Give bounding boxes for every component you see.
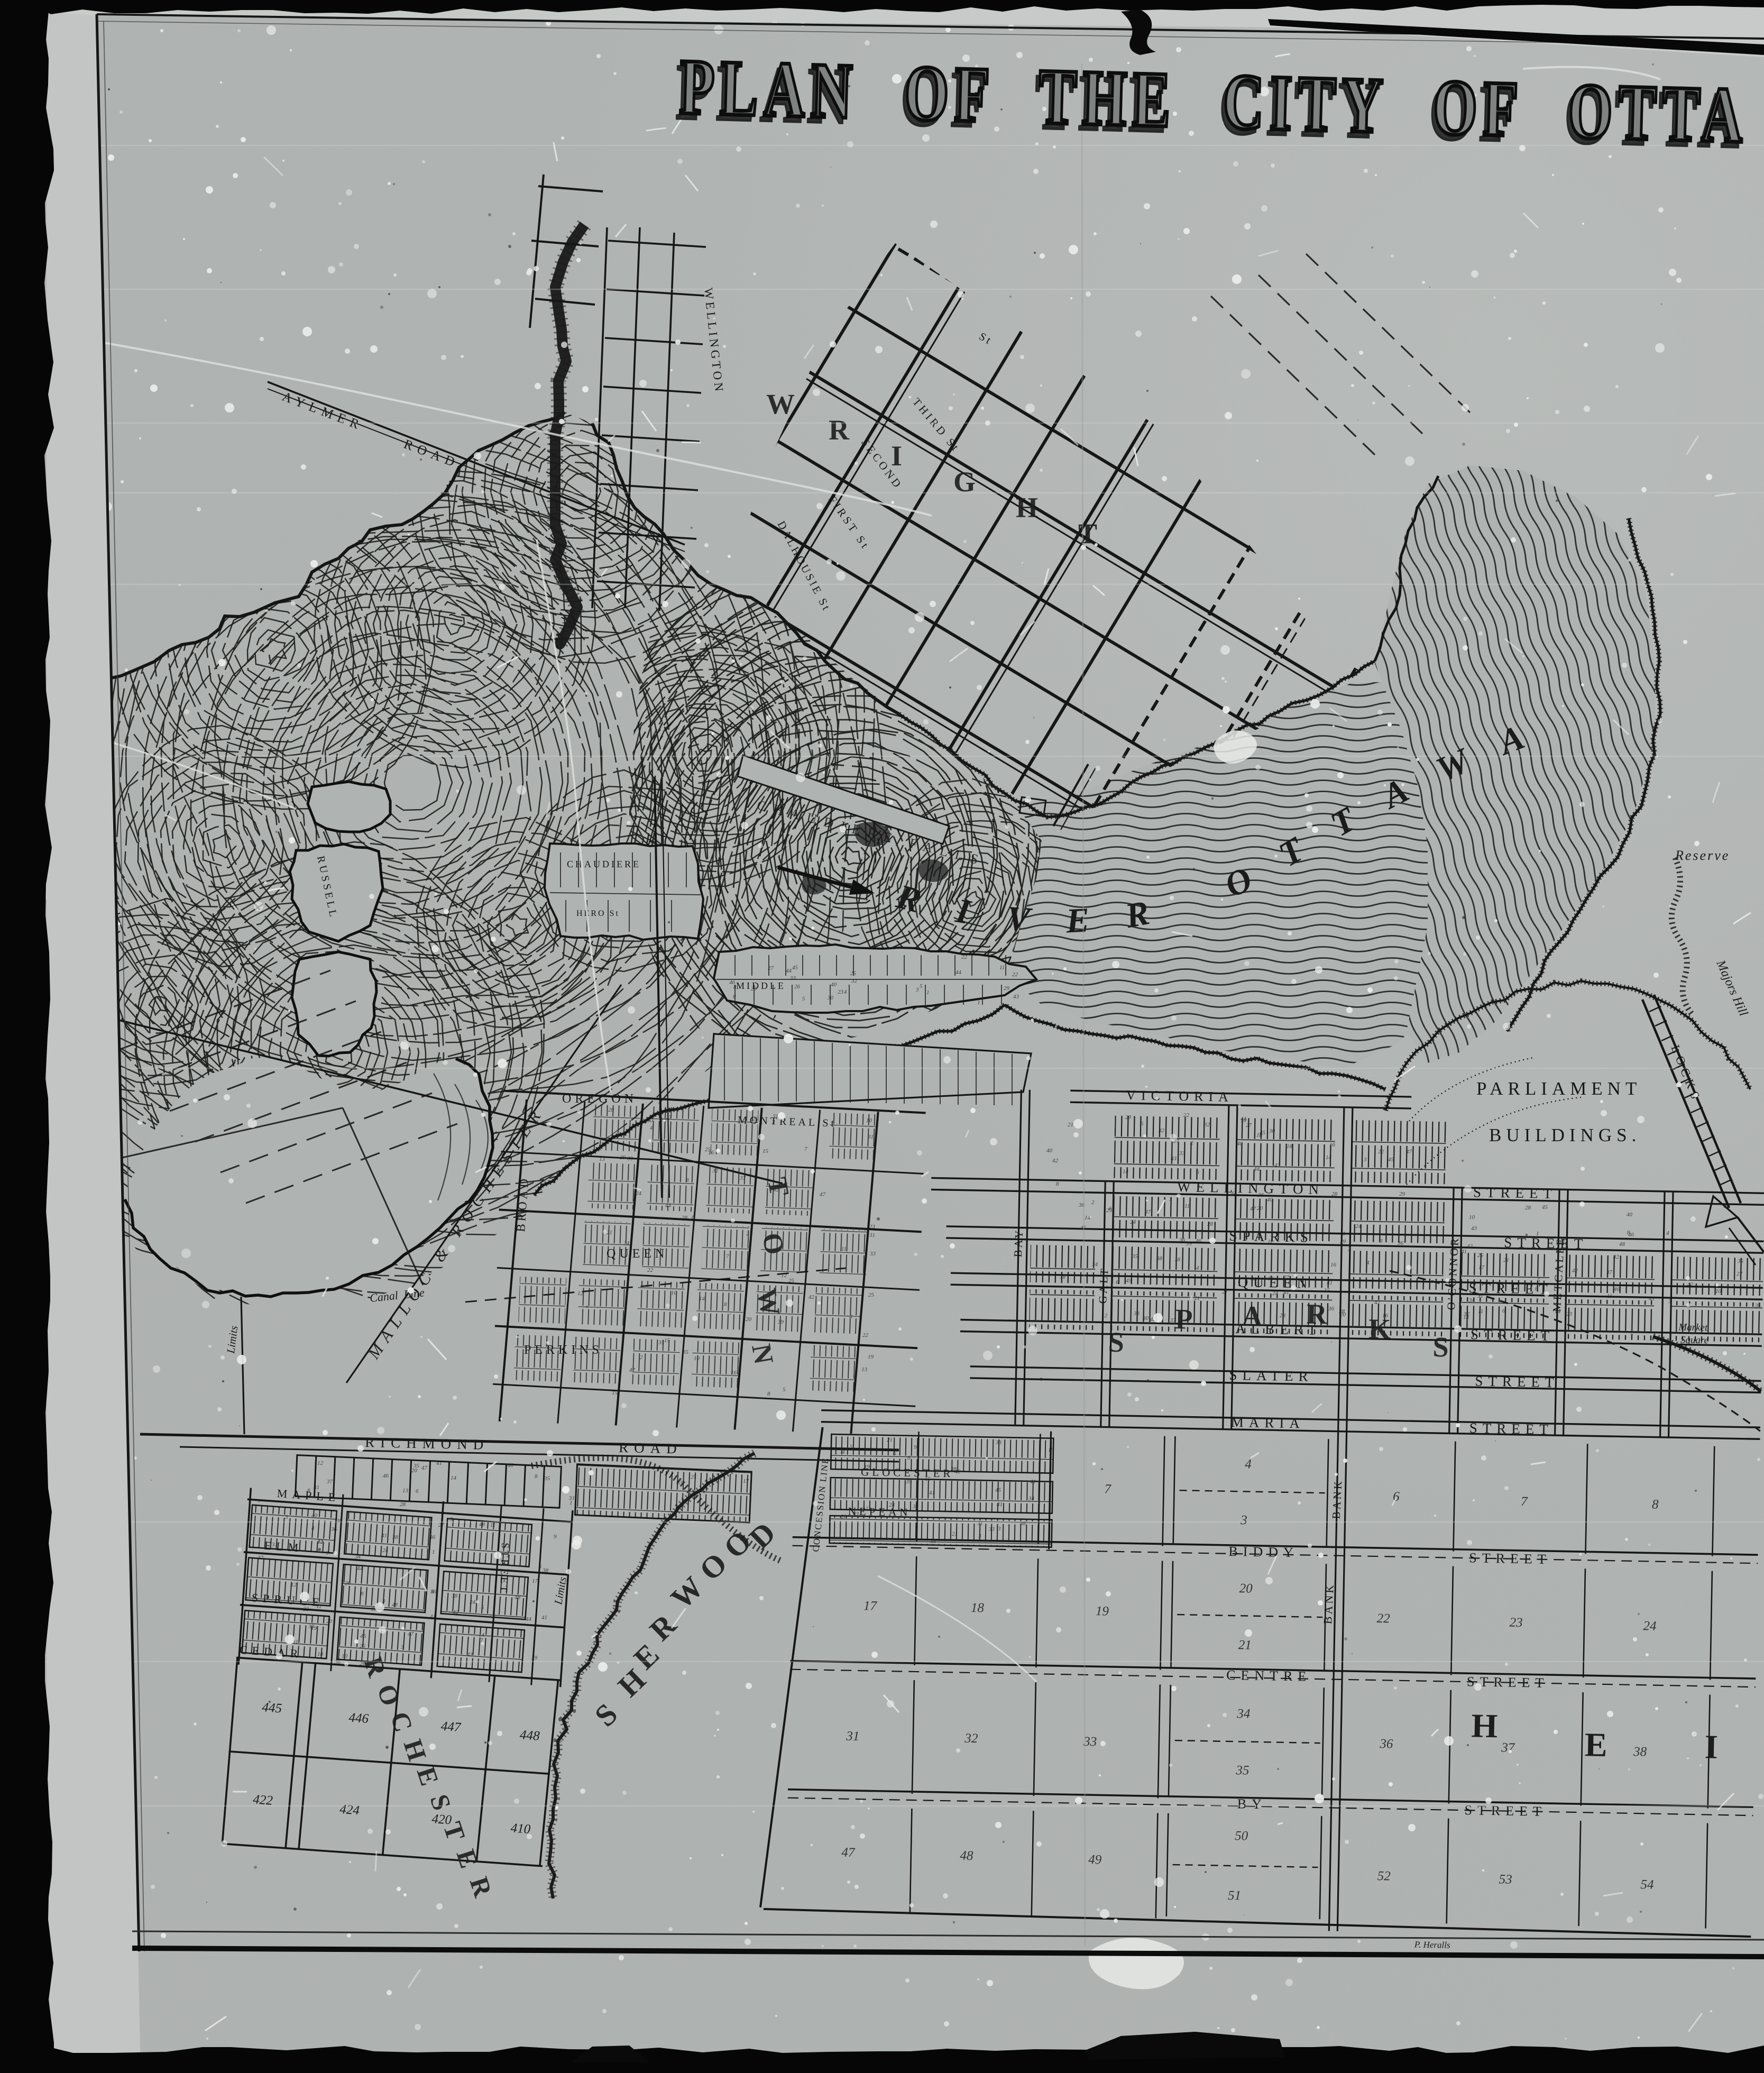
svg-text:15: 15 bbox=[1048, 1447, 1054, 1453]
svg-text:48: 48 bbox=[960, 1849, 973, 1863]
svg-text:8: 8 bbox=[1652, 1498, 1659, 1512]
svg-text:22: 22 bbox=[862, 1332, 869, 1338]
svg-text:22: 22 bbox=[961, 954, 968, 960]
svg-text:4: 4 bbox=[1666, 1230, 1669, 1236]
svg-text:RICHMOND: RICHMOND bbox=[365, 1434, 490, 1453]
svg-text:17: 17 bbox=[743, 1478, 749, 1484]
svg-text:I: I bbox=[1704, 1728, 1718, 1765]
svg-text:448: 448 bbox=[519, 1728, 540, 1744]
svg-text:36: 36 bbox=[1257, 1192, 1264, 1198]
svg-text:38: 38 bbox=[542, 1567, 549, 1574]
svg-text:45: 45 bbox=[792, 965, 798, 971]
svg-text:4: 4 bbox=[650, 1125, 653, 1131]
svg-text:22: 22 bbox=[1012, 971, 1018, 978]
svg-text:34: 34 bbox=[354, 1554, 361, 1560]
svg-text:46: 46 bbox=[1196, 1238, 1202, 1244]
svg-text:ROAD: ROAD bbox=[619, 1439, 683, 1457]
svg-text:31: 31 bbox=[867, 1134, 874, 1140]
svg-text:23: 23 bbox=[1509, 1616, 1522, 1630]
svg-text:3: 3 bbox=[1363, 1157, 1367, 1163]
svg-text:48: 48 bbox=[392, 1602, 398, 1608]
svg-text:6: 6 bbox=[1502, 1308, 1505, 1314]
svg-text:4: 4 bbox=[1366, 1260, 1370, 1266]
svg-text:43: 43 bbox=[467, 1652, 473, 1658]
svg-text:40: 40 bbox=[831, 982, 837, 988]
svg-text:23: 23 bbox=[838, 989, 844, 995]
svg-text:31: 31 bbox=[846, 1729, 859, 1744]
svg-text:6: 6 bbox=[692, 1214, 695, 1221]
svg-text:27: 27 bbox=[438, 1522, 445, 1528]
svg-text:18: 18 bbox=[1174, 1256, 1181, 1263]
svg-text:6: 6 bbox=[416, 1488, 419, 1494]
svg-text:445: 445 bbox=[262, 1700, 282, 1716]
svg-text:BY: BY bbox=[1237, 1796, 1267, 1812]
svg-text:8: 8 bbox=[1535, 1286, 1538, 1292]
svg-text:35: 35 bbox=[1132, 1253, 1138, 1260]
svg-text:43: 43 bbox=[1013, 994, 1019, 1000]
svg-text:35: 35 bbox=[658, 1340, 665, 1346]
svg-text:40: 40 bbox=[1267, 1197, 1273, 1203]
svg-text:5: 5 bbox=[1141, 1121, 1144, 1127]
svg-text:S: S bbox=[1108, 1326, 1124, 1359]
svg-text:48: 48 bbox=[514, 1594, 521, 1601]
svg-text:16: 16 bbox=[1382, 1313, 1389, 1319]
svg-text:Market: Market bbox=[1678, 1322, 1708, 1333]
svg-text:11: 11 bbox=[490, 1522, 495, 1528]
svg-text:OREGON: OREGON bbox=[562, 1092, 637, 1106]
svg-text:VICTORIA: VICTORIA bbox=[1126, 1087, 1234, 1105]
svg-text:40: 40 bbox=[1046, 1148, 1053, 1154]
svg-text:5: 5 bbox=[539, 1563, 542, 1570]
svg-text:23: 23 bbox=[666, 1114, 672, 1121]
svg-text:47: 47 bbox=[1250, 1206, 1256, 1212]
svg-text:12: 12 bbox=[705, 1478, 711, 1484]
svg-text:38: 38 bbox=[1633, 1745, 1647, 1759]
svg-text:14: 14 bbox=[1085, 1215, 1091, 1221]
svg-text:23: 23 bbox=[869, 1224, 876, 1230]
svg-text:10: 10 bbox=[1715, 1288, 1722, 1295]
svg-text:42: 42 bbox=[773, 1187, 779, 1193]
svg-text:7: 7 bbox=[1521, 1494, 1528, 1509]
svg-text:38: 38 bbox=[1156, 1255, 1163, 1262]
svg-text:44: 44 bbox=[1254, 1166, 1260, 1172]
svg-text:R: R bbox=[1306, 1298, 1328, 1330]
svg-text:4: 4 bbox=[311, 1525, 315, 1531]
svg-text:41: 41 bbox=[436, 1460, 442, 1466]
svg-text:47: 47 bbox=[629, 1367, 636, 1373]
svg-text:38: 38 bbox=[392, 1534, 399, 1540]
svg-text:20: 20 bbox=[1340, 1311, 1346, 1318]
svg-text:24: 24 bbox=[1643, 1619, 1656, 1633]
svg-text:447: 447 bbox=[440, 1719, 462, 1735]
svg-text:28: 28 bbox=[400, 1501, 406, 1508]
svg-text:40: 40 bbox=[1237, 1141, 1243, 1147]
svg-text:20: 20 bbox=[1257, 1205, 1263, 1212]
svg-text:41: 41 bbox=[314, 1484, 319, 1491]
svg-text:41: 41 bbox=[1030, 1479, 1036, 1485]
svg-text:25: 25 bbox=[868, 1292, 875, 1298]
svg-text:52: 52 bbox=[1377, 1869, 1391, 1883]
svg-text:33: 33 bbox=[1133, 1310, 1140, 1317]
svg-text:26: 26 bbox=[345, 1580, 351, 1586]
svg-text:STREET: STREET bbox=[1475, 1373, 1559, 1390]
svg-text:23: 23 bbox=[1566, 1311, 1573, 1317]
svg-text:43: 43 bbox=[1471, 1225, 1477, 1232]
svg-text:17: 17 bbox=[1478, 1264, 1485, 1271]
svg-text:37: 37 bbox=[1144, 1209, 1151, 1215]
svg-text:35: 35 bbox=[1737, 1258, 1744, 1264]
svg-text:32: 32 bbox=[964, 1731, 978, 1746]
svg-text:33: 33 bbox=[676, 1480, 683, 1486]
svg-text:8: 8 bbox=[1627, 1230, 1630, 1236]
svg-text:7: 7 bbox=[804, 1146, 807, 1152]
svg-text:23: 23 bbox=[751, 986, 757, 992]
svg-text:30: 30 bbox=[1142, 1315, 1149, 1322]
svg-text:15: 15 bbox=[925, 1476, 931, 1482]
svg-text:1: 1 bbox=[1536, 1231, 1539, 1237]
svg-text:36: 36 bbox=[430, 1589, 437, 1595]
svg-text:29: 29 bbox=[620, 1154, 626, 1161]
svg-text:3: 3 bbox=[1379, 1238, 1383, 1244]
svg-text:25: 25 bbox=[1106, 1207, 1113, 1214]
svg-text:53: 53 bbox=[1499, 1872, 1512, 1886]
svg-text:41: 41 bbox=[1327, 1280, 1333, 1286]
svg-text:STREET: STREET bbox=[1473, 1184, 1558, 1201]
svg-text:14: 14 bbox=[699, 1296, 705, 1302]
svg-text:24: 24 bbox=[470, 1599, 476, 1606]
svg-text:446: 446 bbox=[348, 1711, 370, 1727]
svg-text:41: 41 bbox=[381, 1533, 387, 1539]
svg-text:42: 42 bbox=[1572, 1268, 1578, 1274]
svg-text:41: 41 bbox=[1461, 1249, 1467, 1255]
svg-text:5: 5 bbox=[850, 1444, 853, 1450]
svg-text:7: 7 bbox=[726, 1253, 729, 1260]
svg-text:42: 42 bbox=[1467, 1243, 1473, 1250]
svg-text:35: 35 bbox=[413, 1463, 420, 1469]
svg-text:46: 46 bbox=[1614, 1286, 1620, 1292]
svg-text:11: 11 bbox=[1184, 1203, 1190, 1209]
svg-text:2: 2 bbox=[1091, 1199, 1095, 1206]
svg-text:37: 37 bbox=[257, 1555, 264, 1561]
svg-text:HERO St: HERO St bbox=[576, 909, 620, 918]
svg-text:25: 25 bbox=[788, 1278, 795, 1284]
svg-text:28: 28 bbox=[1207, 1221, 1214, 1227]
svg-text:3: 3 bbox=[771, 1119, 775, 1125]
svg-text:43: 43 bbox=[853, 1511, 859, 1517]
svg-text:T: T bbox=[1078, 518, 1097, 549]
svg-text:6: 6 bbox=[893, 1451, 896, 1457]
svg-text:13: 13 bbox=[861, 1366, 868, 1373]
svg-text:R: R bbox=[829, 414, 850, 446]
svg-text:27: 27 bbox=[1283, 1274, 1290, 1281]
svg-text:11: 11 bbox=[999, 965, 1005, 971]
svg-text:40: 40 bbox=[1627, 1212, 1633, 1218]
svg-text:27: 27 bbox=[768, 965, 774, 971]
svg-text:3: 3 bbox=[400, 1644, 404, 1650]
svg-text:47: 47 bbox=[820, 1191, 826, 1198]
svg-text:9: 9 bbox=[1497, 1285, 1501, 1291]
svg-text:32: 32 bbox=[1613, 1254, 1620, 1260]
svg-text:19: 19 bbox=[864, 1464, 870, 1470]
svg-text:28: 28 bbox=[682, 1215, 688, 1221]
svg-text:18: 18 bbox=[1256, 1132, 1263, 1139]
svg-text:32: 32 bbox=[851, 978, 858, 984]
svg-text:2: 2 bbox=[1190, 1140, 1193, 1146]
svg-text:25: 25 bbox=[691, 1474, 697, 1480]
svg-text:15: 15 bbox=[612, 1390, 618, 1396]
svg-text:44: 44 bbox=[357, 1565, 363, 1572]
svg-text:32: 32 bbox=[912, 1503, 919, 1510]
svg-text:8: 8 bbox=[767, 1391, 770, 1397]
svg-text:3: 3 bbox=[915, 987, 919, 993]
svg-text:31: 31 bbox=[869, 1232, 875, 1239]
svg-text:43: 43 bbox=[1649, 1296, 1655, 1302]
svg-text:44: 44 bbox=[786, 968, 792, 974]
svg-text:11: 11 bbox=[1267, 1239, 1273, 1245]
svg-text:22: 22 bbox=[647, 1267, 654, 1273]
svg-text:36: 36 bbox=[1379, 1737, 1393, 1751]
svg-text:4: 4 bbox=[849, 1314, 852, 1320]
svg-text:BANK: BANK bbox=[1321, 1582, 1336, 1625]
svg-text:MIDDLE: MIDDLE bbox=[736, 980, 786, 991]
svg-text:8: 8 bbox=[724, 1301, 727, 1308]
svg-text:BUILDINGS.: BUILDINGS. bbox=[1489, 1125, 1641, 1145]
svg-text:4: 4 bbox=[1245, 1457, 1252, 1471]
svg-text:PERKINS: PERKINS bbox=[524, 1343, 603, 1357]
svg-text:13: 13 bbox=[402, 1488, 409, 1494]
svg-text:29: 29 bbox=[1399, 1191, 1405, 1197]
svg-text:11: 11 bbox=[1607, 1293, 1612, 1299]
svg-text:14: 14 bbox=[451, 1475, 457, 1481]
svg-text:49: 49 bbox=[1088, 1852, 1102, 1867]
svg-text:4: 4 bbox=[844, 989, 847, 995]
svg-text:32: 32 bbox=[712, 1168, 719, 1174]
svg-text:19: 19 bbox=[311, 1625, 317, 1631]
svg-text:51: 51 bbox=[1228, 1888, 1241, 1903]
svg-text:10: 10 bbox=[1469, 1214, 1475, 1221]
svg-text:STREET: STREET bbox=[1464, 1802, 1547, 1819]
svg-text:35: 35 bbox=[682, 1349, 689, 1355]
svg-text:GALT: GALT bbox=[1096, 1267, 1111, 1304]
svg-text:50: 50 bbox=[1235, 1829, 1248, 1843]
svg-text:18: 18 bbox=[317, 1651, 324, 1657]
svg-text:31: 31 bbox=[271, 1542, 278, 1548]
svg-text:20: 20 bbox=[1239, 1581, 1253, 1595]
svg-text:7: 7 bbox=[1104, 1482, 1111, 1497]
svg-text:STREET: STREET bbox=[498, 1543, 511, 1594]
svg-text:16: 16 bbox=[1330, 1262, 1337, 1268]
svg-text:41: 41 bbox=[1283, 1289, 1289, 1296]
svg-text:A: A bbox=[1242, 1300, 1263, 1332]
svg-text:6: 6 bbox=[1197, 1182, 1200, 1189]
svg-text:STREET: STREET bbox=[1469, 1420, 1554, 1437]
svg-text:28: 28 bbox=[1525, 1205, 1531, 1211]
svg-text:27: 27 bbox=[1737, 1271, 1743, 1277]
svg-text:24: 24 bbox=[1355, 1223, 1362, 1230]
svg-text:9: 9 bbox=[914, 1444, 917, 1451]
svg-text:15: 15 bbox=[1324, 1287, 1330, 1294]
svg-text:36: 36 bbox=[330, 1526, 337, 1533]
svg-text:45: 45 bbox=[1126, 1278, 1132, 1284]
svg-text:38: 38 bbox=[451, 1593, 458, 1599]
svg-text:STREET: STREET bbox=[1504, 1234, 1588, 1252]
svg-text:39: 39 bbox=[1186, 1241, 1192, 1247]
svg-text:BIDDY: BIDDY bbox=[1228, 1544, 1299, 1560]
svg-text:4: 4 bbox=[842, 1449, 845, 1455]
svg-text:PARLIAMENT: PARLIAMENT bbox=[1476, 1078, 1641, 1099]
svg-text:41: 41 bbox=[430, 1613, 436, 1620]
svg-text:12: 12 bbox=[1101, 1313, 1108, 1319]
svg-text:22: 22 bbox=[303, 1606, 309, 1612]
svg-text:6: 6 bbox=[1116, 1279, 1119, 1286]
svg-text:15: 15 bbox=[664, 1337, 670, 1344]
svg-text:32: 32 bbox=[1158, 1127, 1165, 1134]
svg-text:21: 21 bbox=[952, 1531, 958, 1537]
svg-text:29: 29 bbox=[1125, 1114, 1132, 1121]
svg-text:45: 45 bbox=[782, 1182, 788, 1188]
svg-text:8: 8 bbox=[535, 1473, 538, 1480]
svg-text:41: 41 bbox=[929, 1490, 935, 1496]
svg-text:16: 16 bbox=[731, 1370, 737, 1376]
svg-text:STREET: STREET bbox=[1469, 1550, 1551, 1567]
svg-text:19: 19 bbox=[1096, 1604, 1109, 1618]
svg-text:8: 8 bbox=[307, 1488, 310, 1494]
svg-text:54: 54 bbox=[1640, 1877, 1653, 1892]
svg-text:QUEEN: QUEEN bbox=[607, 1247, 668, 1261]
svg-text:46: 46 bbox=[360, 1633, 366, 1639]
svg-text:34: 34 bbox=[1468, 1297, 1475, 1304]
svg-text:1: 1 bbox=[926, 989, 930, 996]
svg-text:21: 21 bbox=[607, 1230, 612, 1236]
svg-text:BANK: BANK bbox=[1330, 1479, 1345, 1519]
svg-text:29: 29 bbox=[1340, 1239, 1346, 1245]
svg-text:CENTRE: CENTRE bbox=[1226, 1667, 1312, 1684]
svg-text:45: 45 bbox=[1388, 1157, 1394, 1163]
svg-text:47: 47 bbox=[1406, 1149, 1412, 1155]
svg-text:34: 34 bbox=[930, 1538, 936, 1545]
svg-text:11: 11 bbox=[866, 1506, 871, 1512]
svg-text:30: 30 bbox=[1269, 1128, 1275, 1134]
svg-text:H: H bbox=[1471, 1707, 1498, 1745]
svg-text:25: 25 bbox=[850, 970, 857, 977]
svg-text:30: 30 bbox=[336, 1518, 343, 1524]
svg-text:34: 34 bbox=[1091, 1261, 1098, 1268]
svg-text:28: 28 bbox=[660, 1117, 666, 1123]
svg-text:36: 36 bbox=[1328, 1306, 1335, 1312]
svg-text:44: 44 bbox=[1241, 1116, 1247, 1122]
svg-text:9: 9 bbox=[326, 1550, 329, 1556]
svg-text:31: 31 bbox=[1477, 1293, 1483, 1299]
svg-text:41: 41 bbox=[541, 1615, 547, 1621]
svg-text:37: 37 bbox=[739, 1175, 746, 1181]
svg-text:28: 28 bbox=[1331, 1191, 1338, 1197]
svg-text:5: 5 bbox=[802, 996, 805, 1002]
svg-text:27: 27 bbox=[1246, 1122, 1252, 1129]
svg-text:11: 11 bbox=[841, 1246, 847, 1252]
svg-text:3: 3 bbox=[284, 1514, 288, 1520]
svg-text:21: 21 bbox=[1503, 1257, 1509, 1263]
svg-text:25: 25 bbox=[1477, 1252, 1484, 1259]
svg-text:20: 20 bbox=[608, 1107, 614, 1113]
svg-text:21: 21 bbox=[1238, 1638, 1251, 1652]
svg-text:42: 42 bbox=[1687, 1281, 1694, 1288]
svg-text:6: 6 bbox=[1232, 1190, 1235, 1197]
svg-text:MARIA: MARIA bbox=[1231, 1414, 1306, 1432]
svg-text:14: 14 bbox=[1555, 1308, 1561, 1315]
svg-text:42: 42 bbox=[453, 1609, 459, 1616]
svg-text:H: H bbox=[1016, 492, 1038, 524]
svg-text:42: 42 bbox=[1052, 1158, 1059, 1164]
svg-text:33: 33 bbox=[789, 975, 796, 982]
svg-text:10: 10 bbox=[866, 1117, 872, 1124]
svg-text:3: 3 bbox=[978, 1533, 981, 1539]
svg-text:33: 33 bbox=[988, 1526, 995, 1533]
svg-text:38: 38 bbox=[1059, 1274, 1066, 1280]
svg-text:21: 21 bbox=[746, 1231, 752, 1237]
svg-text:22: 22 bbox=[1378, 1149, 1384, 1155]
svg-text:3: 3 bbox=[1668, 1298, 1671, 1305]
svg-text:8: 8 bbox=[361, 1591, 364, 1597]
svg-text:33: 33 bbox=[995, 1439, 1002, 1446]
svg-text:8: 8 bbox=[1056, 1181, 1059, 1187]
svg-text:24: 24 bbox=[623, 1240, 630, 1246]
svg-text:GLOCESTER: GLOCESTER bbox=[861, 1465, 954, 1480]
svg-text:39: 39 bbox=[777, 1319, 784, 1325]
svg-text:5: 5 bbox=[481, 1604, 484, 1611]
svg-text:W: W bbox=[751, 1286, 785, 1318]
svg-text:46: 46 bbox=[383, 1473, 389, 1479]
svg-text:47: 47 bbox=[421, 1465, 428, 1471]
svg-text:Reserve: Reserve bbox=[1675, 848, 1730, 863]
svg-text:25: 25 bbox=[752, 1116, 758, 1122]
svg-text:12: 12 bbox=[577, 1290, 584, 1297]
svg-text:12: 12 bbox=[781, 1272, 787, 1279]
svg-text:44: 44 bbox=[956, 969, 962, 976]
svg-text:44: 44 bbox=[526, 1616, 532, 1622]
svg-text:8: 8 bbox=[733, 994, 736, 1000]
svg-text:44: 44 bbox=[665, 1203, 672, 1209]
svg-text:10: 10 bbox=[694, 1355, 700, 1362]
svg-text:47: 47 bbox=[408, 1631, 414, 1637]
svg-text:22: 22 bbox=[1376, 1611, 1390, 1626]
svg-text:16: 16 bbox=[708, 1150, 714, 1156]
svg-text:38: 38 bbox=[950, 1466, 957, 1472]
svg-text:CHAUDIERE: CHAUDIERE bbox=[567, 859, 641, 869]
svg-text:SLATER: SLATER bbox=[1229, 1367, 1313, 1384]
svg-text:6: 6 bbox=[1196, 1169, 1199, 1176]
svg-text:12: 12 bbox=[291, 1582, 297, 1588]
svg-text:5: 5 bbox=[1537, 1277, 1540, 1283]
svg-text:BAY: BAY bbox=[1012, 1228, 1026, 1258]
svg-text:14: 14 bbox=[1123, 1169, 1129, 1175]
svg-text:45: 45 bbox=[995, 1487, 1002, 1493]
svg-text:9: 9 bbox=[554, 1534, 557, 1540]
svg-text:410: 410 bbox=[510, 1821, 531, 1837]
svg-text:18: 18 bbox=[971, 1601, 985, 1615]
svg-text:21: 21 bbox=[1194, 1295, 1200, 1301]
svg-text:10: 10 bbox=[671, 1290, 677, 1296]
svg-text:35: 35 bbox=[1754, 1302, 1761, 1309]
svg-text:26: 26 bbox=[841, 1514, 847, 1520]
svg-text:1: 1 bbox=[432, 1549, 435, 1555]
svg-text:16: 16 bbox=[1329, 1142, 1336, 1148]
svg-text:48: 48 bbox=[1724, 1204, 1730, 1210]
svg-text:35: 35 bbox=[1235, 1763, 1249, 1777]
svg-text:37: 37 bbox=[1170, 1317, 1177, 1324]
svg-text:Square: Square bbox=[1680, 1334, 1709, 1346]
svg-text:15: 15 bbox=[762, 1148, 769, 1154]
svg-text:21: 21 bbox=[887, 1437, 893, 1443]
